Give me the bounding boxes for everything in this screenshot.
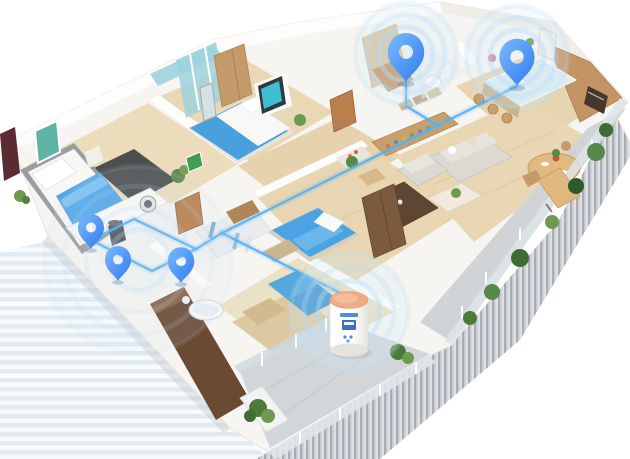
floorplan-illustration [0, 0, 630, 459]
coffee-table-plant [451, 188, 461, 198]
plant-balcony-right-5 [511, 249, 529, 267]
device-label-inner [344, 322, 354, 325]
dining-plant [552, 149, 560, 157]
dining-plate-1 [541, 162, 549, 166]
device-indicator-2 [349, 335, 352, 338]
sofa-pillow-1 [448, 146, 456, 154]
console-item-2 [354, 150, 358, 154]
plant-bedroom-left-b [22, 196, 30, 204]
plant-balcony-bottom-b [261, 409, 275, 423]
plant-balcony-right-3 [568, 178, 584, 194]
smart-home-device[interactable] [330, 292, 372, 360]
plant-balcony-bottom-e [402, 352, 414, 364]
device-indicator-1 [343, 335, 346, 338]
island-stool-3 [502, 113, 512, 123]
device-label-bar [340, 313, 358, 317]
plant-balcony-right-6 [484, 284, 500, 300]
plant-balcony-bottom-c [244, 410, 256, 422]
ripple-bathroom [355, 3, 457, 105]
dining-chair-3 [561, 141, 571, 151]
plant-balcony-right-1 [599, 123, 613, 137]
floorplan-svg [0, 0, 630, 459]
device-top-highlight [334, 294, 358, 304]
ripple-washroom-cluster [44, 166, 232, 354]
plant-corridor-2 [294, 114, 306, 126]
plant-balcony-right-7 [463, 311, 477, 325]
plant-balcony-right-2 [587, 143, 605, 161]
plant-balcony-right-4 [545, 215, 559, 229]
device-indicator-3 [346, 339, 349, 342]
ripple-kitchen [466, 6, 568, 108]
sofa-pillow-2 [468, 138, 476, 146]
device-base [330, 344, 368, 357]
